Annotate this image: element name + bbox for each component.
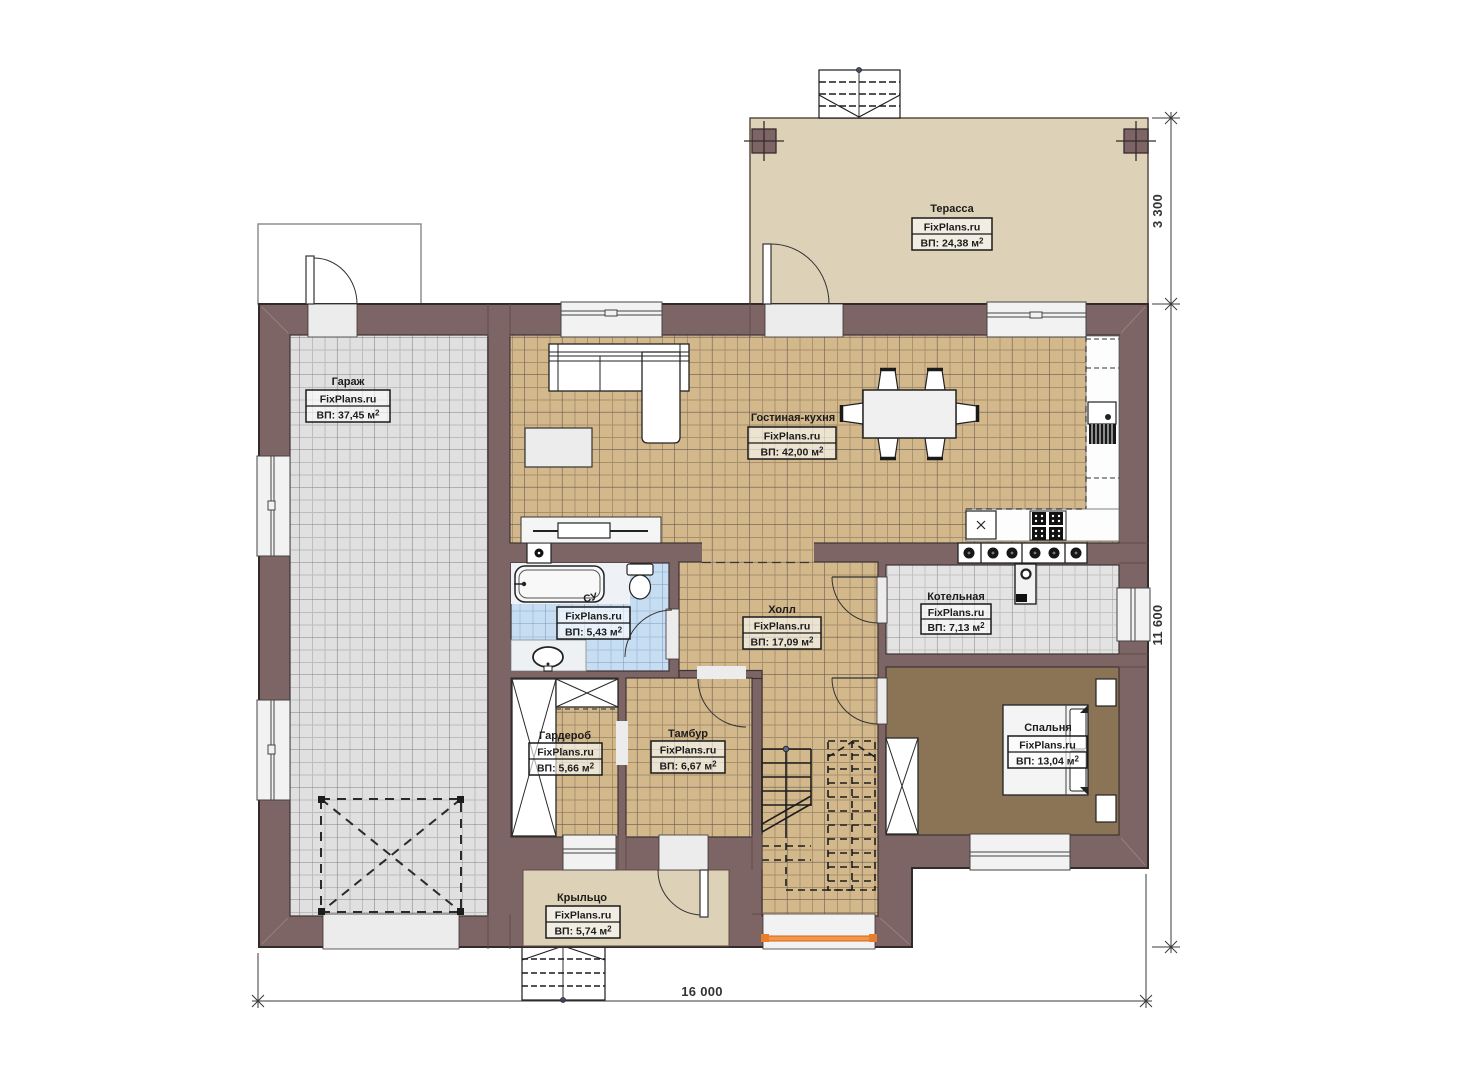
svg-text:ВП: 13,04 м2: ВП: 13,04 м2 xyxy=(1016,755,1080,768)
svg-text:Гараж: Гараж xyxy=(332,376,365,388)
svg-text:ВП: 5,43 м2: ВП: 5,43 м2 xyxy=(565,626,623,639)
svg-text:ВП: 6,67 м2: ВП: 6,67 м2 xyxy=(659,760,717,773)
svg-text:Гостиная-кухня: Гостиная-кухня xyxy=(751,412,835,424)
svg-text:Терасса: Терасса xyxy=(930,203,974,215)
svg-text:11 600: 11 600 xyxy=(1150,605,1165,646)
svg-text:ВП: 42,00 м2: ВП: 42,00 м2 xyxy=(761,446,825,459)
svg-text:FixPlans.ru: FixPlans.ru xyxy=(924,222,981,234)
svg-text:FixPlans.ru: FixPlans.ru xyxy=(1019,740,1076,752)
svg-text:ВП: 17,09 м2: ВП: 17,09 м2 xyxy=(751,636,815,649)
svg-text:ВП: 7,13 м2: ВП: 7,13 м2 xyxy=(927,621,985,634)
svg-text:3 300: 3 300 xyxy=(1150,194,1165,228)
svg-text:Котельная: Котельная xyxy=(927,591,985,603)
svg-text:Гардероб: Гардероб xyxy=(539,730,591,742)
svg-text:FixPlans.ru: FixPlans.ru xyxy=(320,394,377,406)
svg-text:Холл: Холл xyxy=(768,604,796,616)
svg-text:FixPlans.ru: FixPlans.ru xyxy=(565,611,622,623)
svg-text:ВП: 37,45 м2: ВП: 37,45 м2 xyxy=(317,409,381,422)
svg-text:FixPlans.ru: FixPlans.ru xyxy=(555,910,612,922)
svg-text:16 000: 16 000 xyxy=(681,984,723,999)
svg-text:Крыльцо: Крыльцо xyxy=(557,892,607,904)
svg-text:ВП: 5,66 м2: ВП: 5,66 м2 xyxy=(537,762,595,775)
svg-text:FixPlans.ru: FixPlans.ru xyxy=(660,745,717,757)
svg-text:Спальня: Спальня xyxy=(1024,722,1072,734)
svg-text:FixPlans.ru: FixPlans.ru xyxy=(764,431,821,443)
svg-text:ВП: 24,38 м2: ВП: 24,38 м2 xyxy=(921,237,985,250)
svg-text:FixPlans.ru: FixPlans.ru xyxy=(928,607,985,619)
svg-text:ВП: 5,74 м2: ВП: 5,74 м2 xyxy=(554,925,612,938)
svg-text:Тамбур: Тамбур xyxy=(668,728,708,740)
svg-text:FixPlans.ru: FixPlans.ru xyxy=(537,747,594,759)
svg-text:FixPlans.ru: FixPlans.ru xyxy=(754,621,811,633)
